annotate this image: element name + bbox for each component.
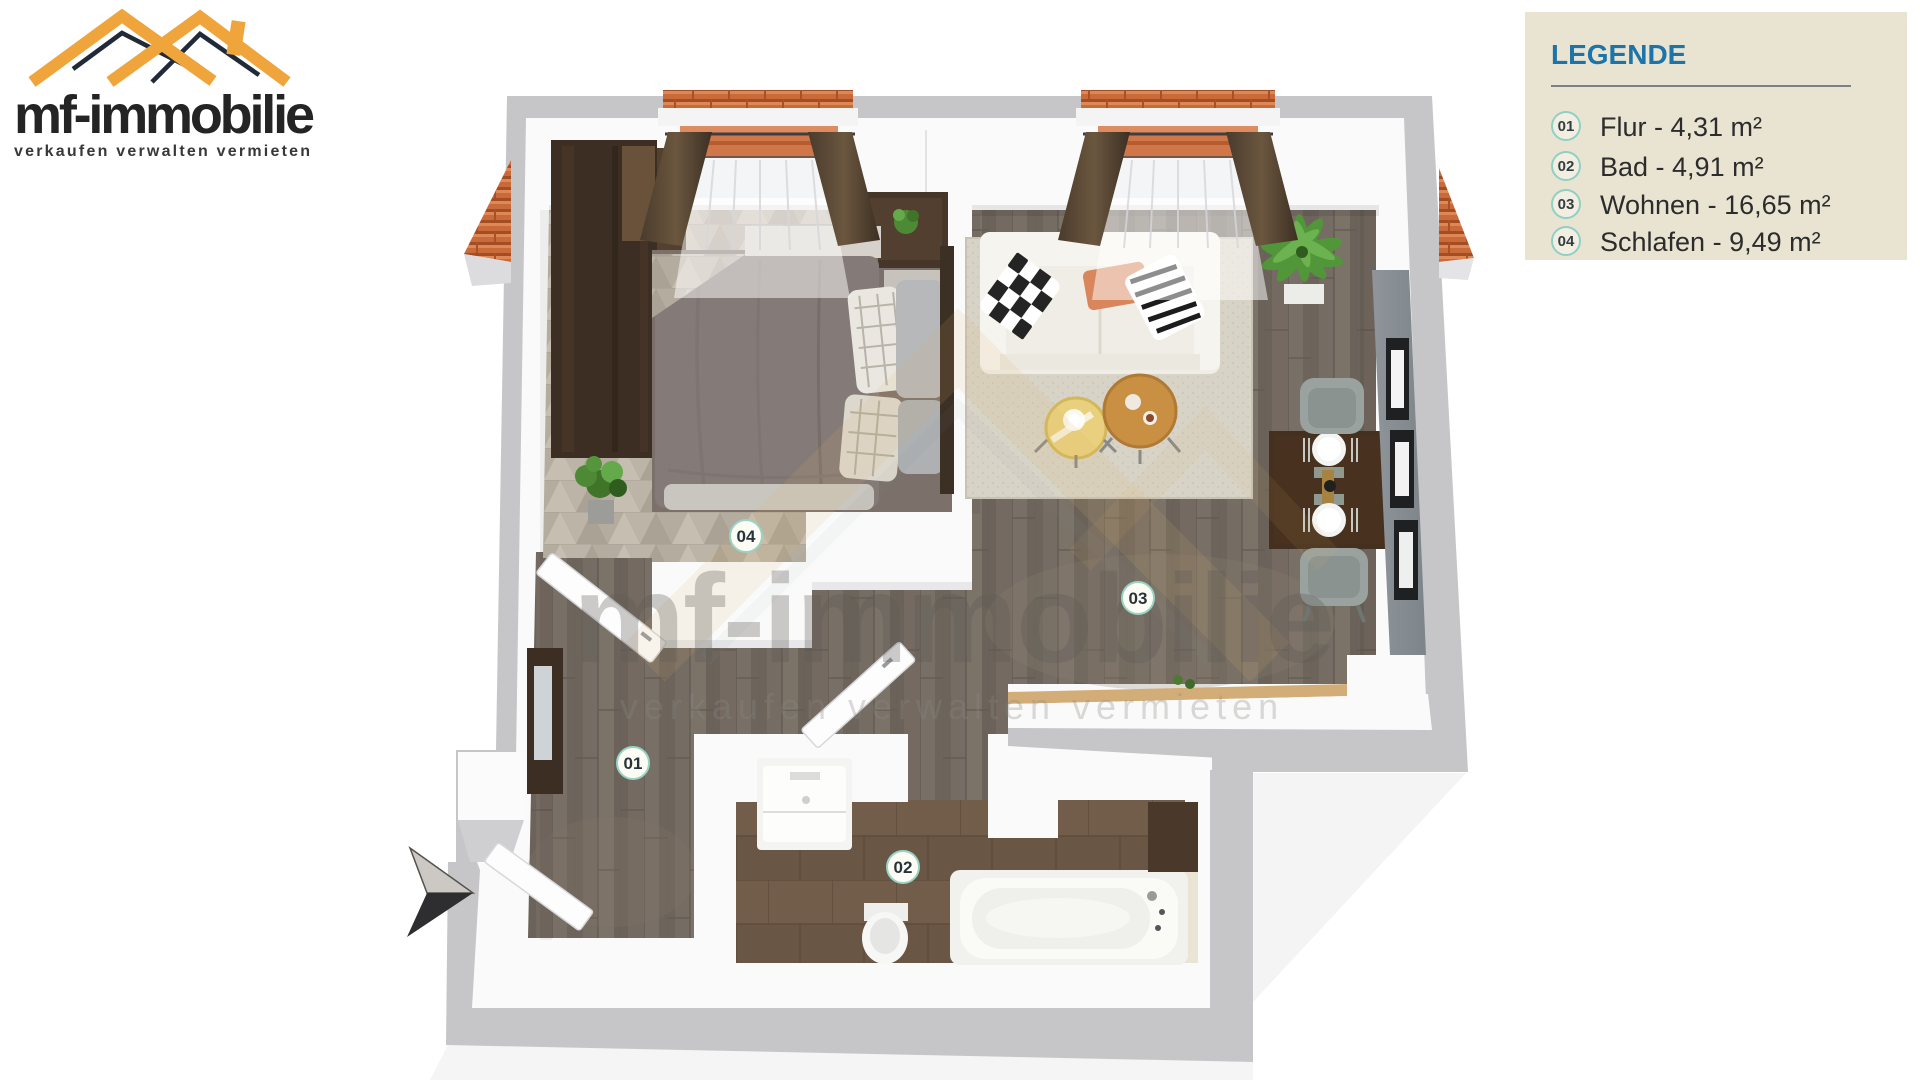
- svg-text:02: 02: [1558, 158, 1575, 175]
- svg-text:Schlafen - 9,49 m²: Schlafen - 9,49 m²: [1600, 227, 1821, 257]
- svg-text:verkaufen verwalten vermieten: verkaufen verwalten vermieten: [14, 143, 312, 160]
- svg-text:04: 04: [737, 527, 756, 546]
- svg-text:Flur - 4,31 m²: Flur - 4,31 m²: [1600, 112, 1762, 142]
- svg-text:Bad - 4,91 m²: Bad - 4,91 m²: [1600, 152, 1764, 182]
- svg-text:verkaufen verwalten vermieten: verkaufen verwalten vermieten: [620, 686, 1284, 727]
- svg-text:02: 02: [894, 858, 913, 877]
- svg-text:mf-immobilie: mf-immobilie: [14, 85, 315, 145]
- svg-text:03: 03: [1129, 589, 1148, 608]
- svg-text:01: 01: [624, 754, 643, 773]
- svg-text:LEGENDE: LEGENDE: [1551, 39, 1686, 70]
- svg-text:mf-immobilie: mf-immobilie: [573, 548, 1333, 689]
- svg-text:04: 04: [1558, 233, 1575, 250]
- svg-text:01: 01: [1558, 118, 1575, 135]
- svg-text:03: 03: [1558, 196, 1575, 213]
- svg-text:Wohnen - 16,65 m²: Wohnen - 16,65 m²: [1600, 190, 1831, 220]
